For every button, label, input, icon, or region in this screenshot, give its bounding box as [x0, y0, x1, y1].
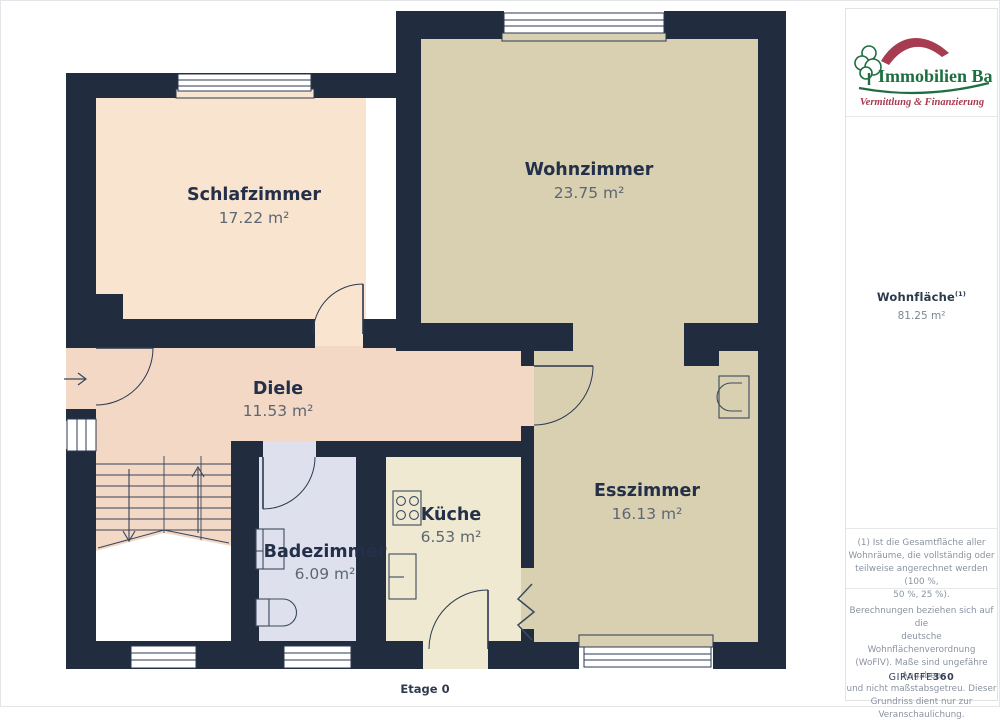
brand-logo: GIRAFFE360 — [846, 671, 997, 684]
disclaimer-line: deutsche Wohnflächenverordnung — [846, 631, 997, 657]
label-diele: Diele — [253, 379, 303, 399]
living-area-summary: Wohnfläche(1) 81.25 m² — [846, 290, 997, 322]
living-area-value: 81.25 m² — [846, 310, 997, 322]
label-schlafzimmer: Schlafzimmer — [187, 185, 321, 205]
footnote-line: (1) Ist die Gesamtfläche aller — [846, 537, 997, 550]
radiator-icon — [717, 376, 749, 418]
kitchen-counter-icon — [389, 554, 416, 599]
stove-icon — [393, 491, 421, 525]
footnote-line: Wohnräume, die vollständig oder — [846, 550, 997, 563]
toilet-icon — [256, 599, 297, 626]
disclaimer-line: und nicht maßstabsgetreu. Dieser — [846, 683, 997, 696]
label-esszimmer: Esszimmer — [594, 481, 700, 501]
floor-label: Etage 0 — [400, 682, 449, 696]
window-schlafzimmer-top — [176, 74, 314, 98]
badezimmer-door-opening — [263, 441, 316, 457]
area-diele: 11.53 m² — [243, 402, 314, 420]
area-wohnzimmer: 23.75 m² — [554, 184, 625, 202]
roof-icon — [881, 38, 949, 65]
sidebar: Immobilien Bart Vermittlung & Finanzieru… — [845, 8, 998, 701]
brand-name: GIRAFFE — [889, 672, 933, 683]
room-wohnzimmer-floor — [421, 39, 758, 323]
floorplan-svg: Schlafzimmer 17.22 m² Wohnzimmer 23.75 m… — [1, 1, 844, 708]
wohnzimmer-esszimmer-passage — [573, 323, 684, 351]
area-badezimmer: 6.09 m² — [295, 565, 356, 583]
window-esszimmer-bottom — [579, 635, 713, 667]
living-area-label-text: Wohnfläche — [877, 290, 955, 304]
area-schlafzimmer: 17.22 m² — [219, 209, 290, 227]
window-badezimmer-bottom — [284, 646, 351, 668]
window-wohnzimmer-top — [502, 13, 666, 41]
disclaimer-line: Berechnungen beziehen sich auf die — [846, 605, 997, 631]
disclaimer-box: Berechnungen beziehen sich auf die deuts… — [846, 589, 997, 700]
footnote-box: (1) Ist die Gesamtfläche aller Wohnräume… — [846, 528, 997, 589]
label-kueche: Küche — [421, 505, 482, 525]
footnote-line: teilweise angerechnet werden (100 %, — [846, 563, 997, 589]
agency-name: Immobilien Bart — [878, 66, 993, 86]
agency-subtitle: Vermittlung & Finanzierung — [859, 97, 983, 108]
agency-logo: Immobilien Bart Vermittlung & Finanzieru… — [846, 9, 997, 117]
area-kueche: 6.53 m² — [421, 528, 482, 546]
label-badezimmer: Badezimmer — [264, 542, 387, 562]
esszimmer-door-opening — [521, 366, 534, 426]
agency-logo-graphic: Immobilien Bart Vermittlung & Finanzieru… — [851, 15, 993, 111]
window-entry-left — [67, 419, 96, 451]
living-area-footnote-marker: (1) — [955, 290, 966, 298]
label-wohnzimmer: Wohnzimmer — [525, 160, 654, 180]
living-area-label: Wohnfläche(1) — [846, 290, 997, 304]
room-diele-floor — [96, 346, 521, 441]
disclaimer-line: Grundriss dient nur zur — [846, 696, 997, 709]
schlafzimmer-door-opening — [315, 291, 363, 348]
kueche-door-opening — [423, 641, 488, 669]
floorplan-page: { "meta": { "floor_label": "Etage 0" }, … — [0, 0, 1000, 707]
brand-suffix: 360 — [933, 672, 955, 683]
area-esszimmer: 16.13 m² — [612, 505, 683, 523]
disclaimer-line: Veranschaulichung. — [846, 709, 997, 722]
understairs-void — [96, 533, 231, 641]
window-understairs-bottom — [131, 646, 196, 668]
